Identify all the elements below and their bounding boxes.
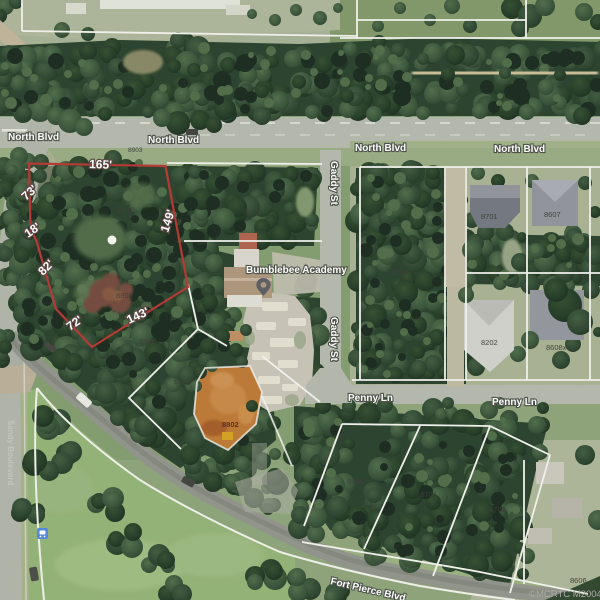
svg-text:©MCRTC M20045: ©MCRTC M20045 xyxy=(529,589,600,600)
